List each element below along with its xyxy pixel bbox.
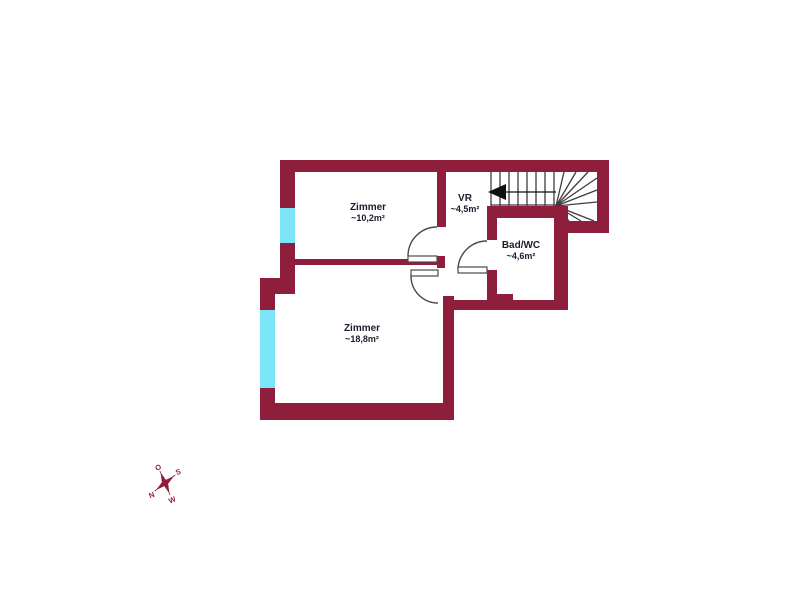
door-upper-zimmer: [408, 227, 437, 262]
compass-rose-icon: O S N W: [147, 462, 182, 505]
compass-west-label: W: [167, 494, 178, 505]
door-lower-zimmer: [411, 270, 438, 303]
compass-north-label: N: [147, 490, 156, 500]
room-label-badwc: Bad/WC ~4,6m²: [471, 240, 571, 262]
room-area: ~10,2m²: [308, 213, 428, 224]
room-name: Zimmer: [308, 202, 428, 213]
room-name: Zimmer: [302, 323, 422, 334]
room-area: ~18,8m²: [302, 334, 422, 345]
compass-east-label: O: [154, 462, 163, 473]
floorplan-canvas: O S N W Zimmer ~10,2m² VR ~4,5m² Bad/WC …: [0, 0, 800, 600]
room-label-vr: VR ~4,5m²: [425, 193, 505, 215]
room-name: Bad/WC: [471, 240, 571, 251]
room-area: ~4,6m²: [471, 251, 571, 262]
room-area: ~4,5m²: [425, 204, 505, 215]
room-label-zimmer-lower: Zimmer ~18,8m²: [302, 323, 422, 345]
room-label-zimmer-upper: Zimmer ~10,2m²: [308, 202, 428, 224]
room-name: VR: [425, 193, 505, 204]
detail-overlay: O S N W: [0, 0, 800, 600]
compass-south-label: S: [174, 467, 182, 477]
